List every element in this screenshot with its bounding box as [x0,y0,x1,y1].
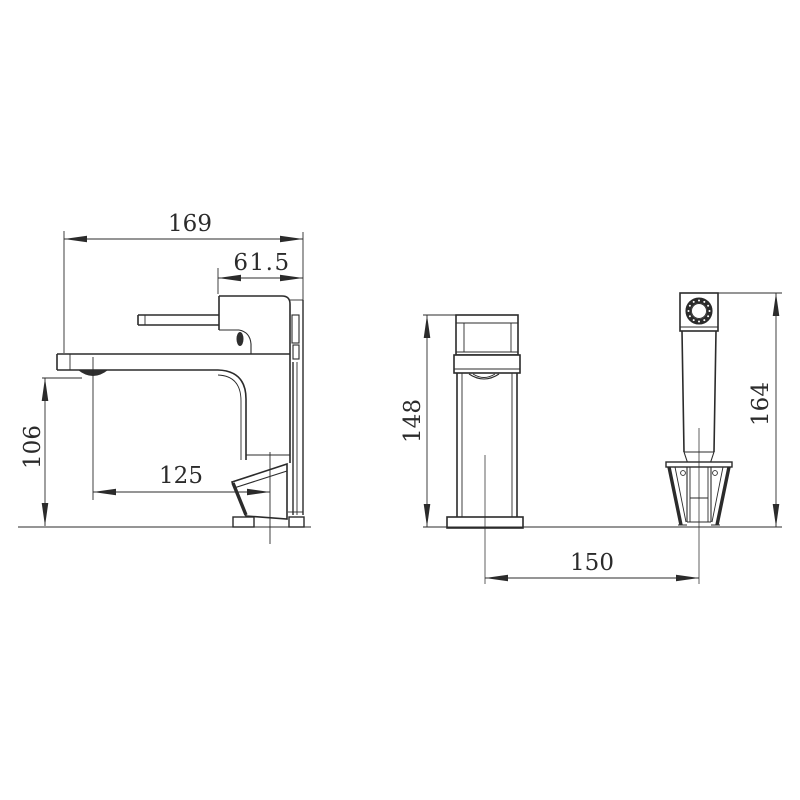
dim-label-164: 164 [748,382,774,426]
arrowhead-150-left [485,575,508,582]
dimensions: 169 61.5 106 125 148 150 164 [20,211,782,581]
dim-label-125: 125 [159,463,203,489]
spout-outlet-arc-inner [473,374,495,378]
arrowhead-106-bottom [42,503,49,526]
arrowhead-125-left [93,489,116,496]
dim-label-169: 169 [168,211,212,237]
body-outer-edges [457,373,517,517]
handle-block [219,296,290,463]
base-foot-right [289,517,304,527]
faucet-technical-drawing: 169 61.5 106 125 148 150 164 [0,0,800,800]
rear-clip-lower [293,345,299,359]
dim-label-148: 148 [400,399,426,443]
arrowhead-164-bottom [773,504,780,527]
body-inner-edges [462,373,512,517]
dim-label-61-5: 61.5 [233,250,290,276]
handle-lever [138,315,219,325]
collar [454,355,520,373]
handle-pivot-detail [237,332,244,346]
body-inner-curve-inner [218,375,241,460]
dim-label-150: 150 [570,550,614,576]
body-inner-curve-outer [218,370,246,460]
base-foot-left [233,517,254,527]
spray-face-center [692,304,707,319]
arrowhead-148-bottom [424,504,431,527]
technical-drawing-canvas: 169 61.5 106 125 148 150 164 [0,0,800,800]
arrowhead-106-top [42,378,49,401]
dim-label-106: 106 [20,425,46,469]
handle-block-front [456,315,518,355]
holder-screw-left [681,471,686,476]
faucet-front-view [447,315,523,584]
arrowhead-150-right [676,575,699,582]
spout-underside [57,354,218,370]
rear-clip-upper [292,315,299,343]
holder-screw-right [713,471,718,476]
arrowhead-164-top [773,293,780,316]
arrowhead-169-right [280,236,303,243]
arrowhead-148-top [424,315,431,338]
arrowhead-169-left [64,236,87,243]
